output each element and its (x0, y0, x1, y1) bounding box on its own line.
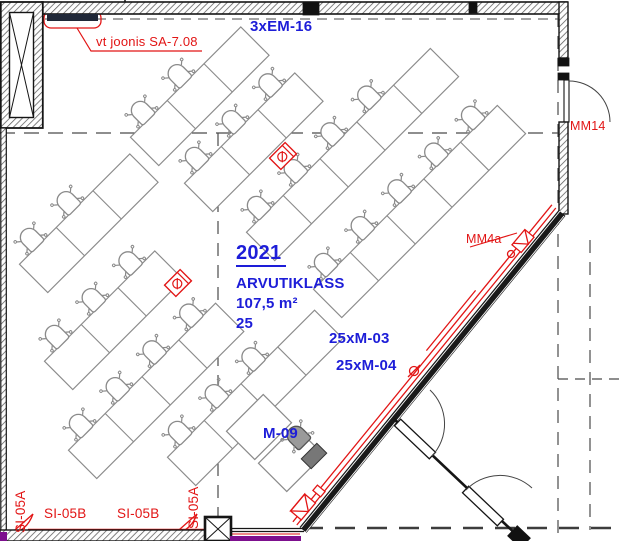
corridor-door-leaf-1 (394, 419, 435, 459)
wall-left (1, 128, 7, 531)
diagonal-duct-line-2 (293, 205, 552, 522)
ref-note-leader (77, 28, 202, 51)
door-frame-post-1 (558, 58, 569, 66)
wall-column-blob (303, 2, 319, 15)
desk-rows (5, 12, 526, 491)
corridor-door-arc-2 (466, 475, 532, 490)
corridor-door-arc-1 (430, 390, 445, 456)
door-frame-post-2 (558, 73, 569, 80)
radiator-bar (47, 14, 98, 21)
diagonal-duct-segment (426, 290, 475, 350)
corridor-door-leaf-2 (462, 486, 503, 526)
floor-plan: vt joonis SA-7.083xEM-162021ARVUTIKLASS1… (0, 0, 619, 541)
wall-grid-post (469, 2, 477, 13)
wall-sensor-icon (408, 365, 420, 377)
door-swing-arc-right (569, 81, 610, 122)
diagonal-duct-line-1 (297, 208, 556, 525)
purple-duct-corner (0, 532, 7, 541)
mm4a-leader (470, 233, 517, 247)
wall-right-lower (559, 122, 568, 214)
door-leaf-right (564, 80, 569, 122)
wall-bottom (0, 530, 206, 541)
wall-right-upper (559, 2, 568, 58)
purple-duct-bottom (230, 536, 301, 541)
floorplan-drawing (0, 0, 619, 541)
